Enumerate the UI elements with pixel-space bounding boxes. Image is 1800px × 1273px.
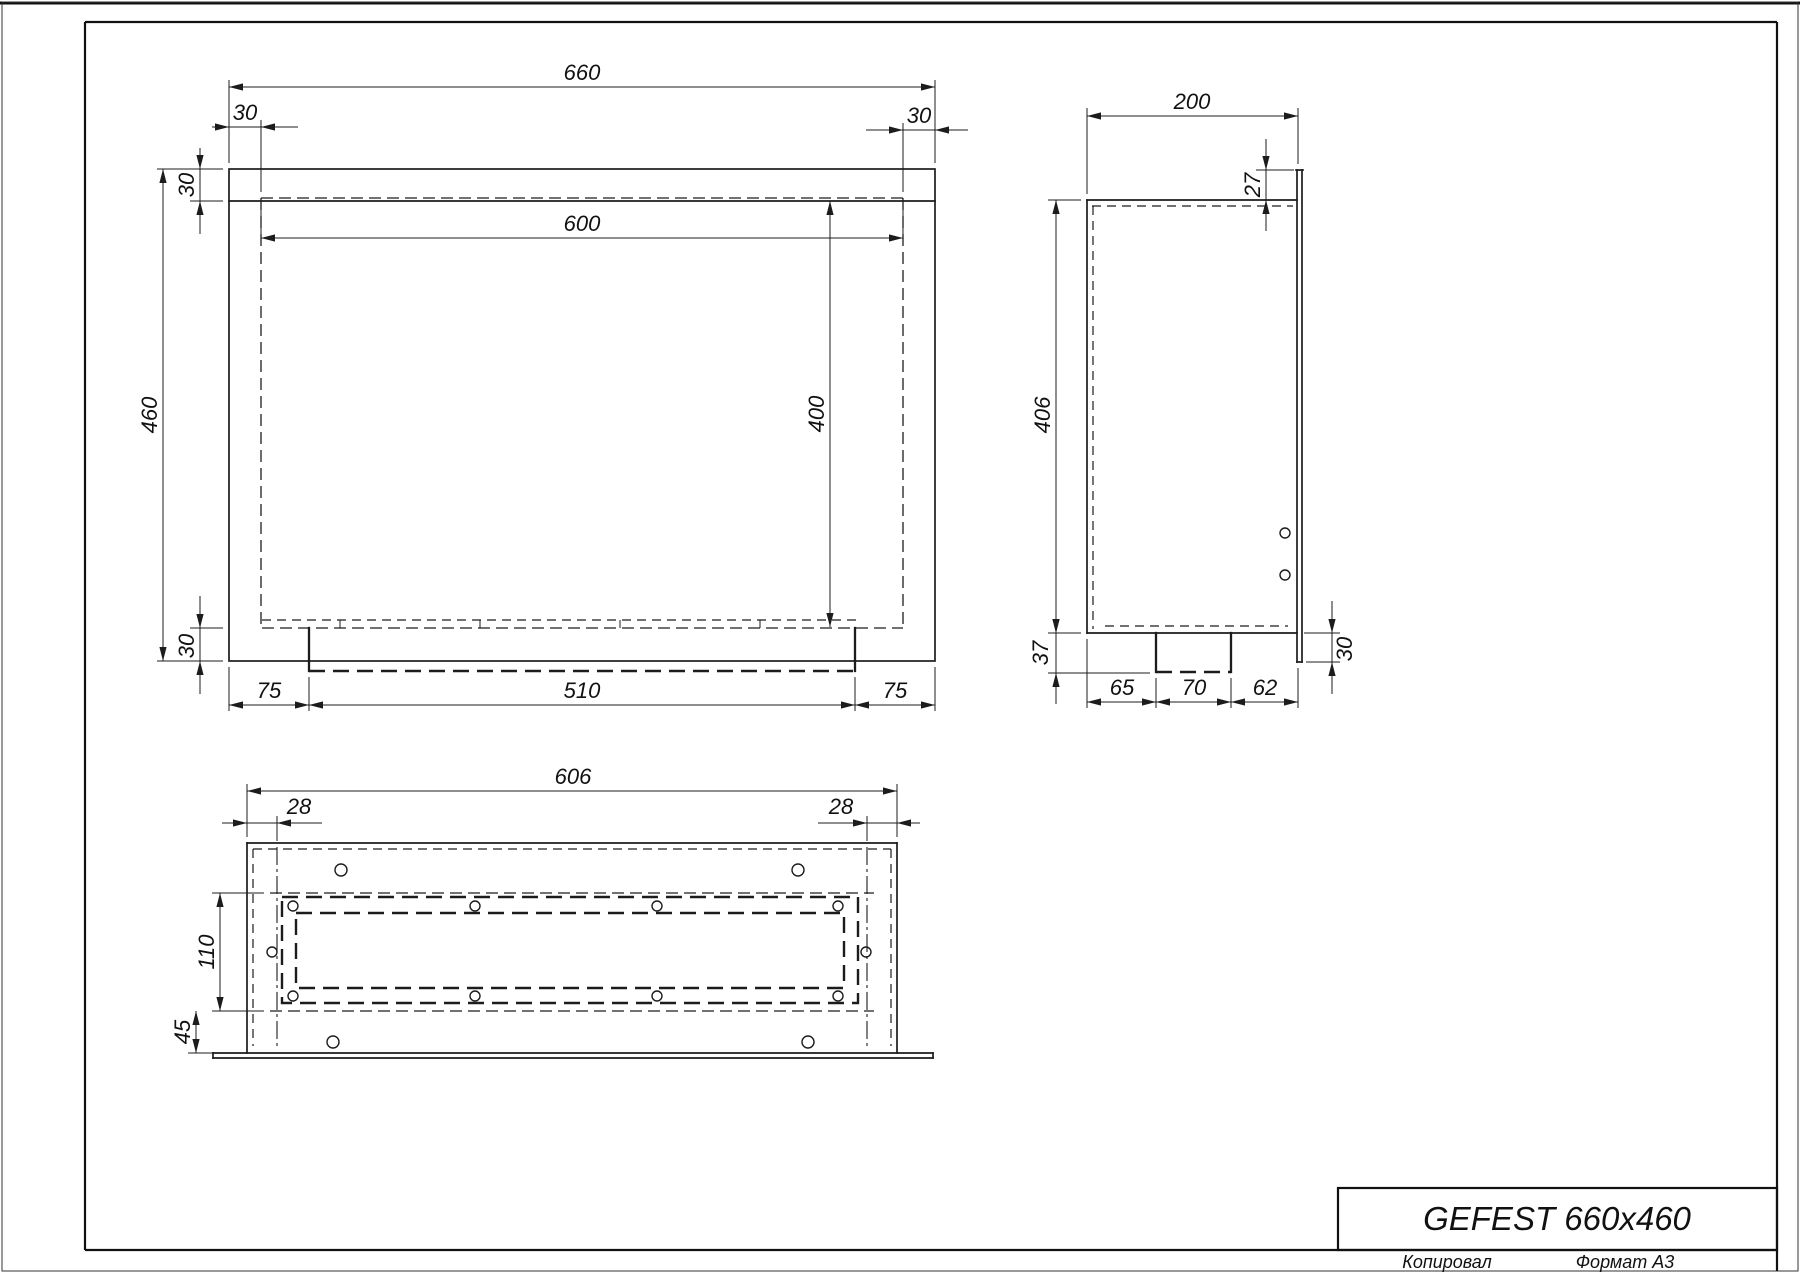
- dim-tray-row: 75 510 75: [229, 667, 935, 711]
- dim-label-600: 600: [564, 211, 601, 236]
- dim-label-30-left-top: 30: [174, 172, 199, 197]
- dim-fold-right-28: 28: [818, 794, 920, 841]
- front-view: 660 30 30 460 30: [137, 60, 968, 711]
- dim-flange-top-30: 30: [174, 148, 223, 234]
- tray-side-hole: [861, 947, 871, 957]
- dim-label-28-left: 28: [286, 794, 312, 819]
- dim-label-606: 606: [555, 764, 592, 789]
- dim-label-400: 400: [804, 395, 829, 432]
- dim-label-110: 110: [194, 934, 219, 970]
- dim-overall-width-660: 660: [229, 60, 935, 163]
- copied-label: Копировал: [1402, 1252, 1492, 1272]
- dim-label-62: 62: [1253, 675, 1277, 700]
- side-view: 200 27 406 37: [1028, 89, 1357, 708]
- dim-label-28-right: 28: [828, 794, 854, 819]
- side-view-foot: [1156, 633, 1231, 672]
- bottom-view-burner-tray: [282, 897, 858, 1003]
- dim-flange-right-30: 30: [866, 103, 968, 192]
- dim-label-460: 460: [137, 396, 162, 433]
- dim-label-65: 65: [1110, 675, 1135, 700]
- dim-flange-left-30: 30: [212, 100, 298, 192]
- dim-label-30-side: 30: [1332, 636, 1357, 661]
- dim-label-406: 406: [1030, 396, 1055, 433]
- dim-label-200: 200: [1173, 89, 1211, 114]
- dim-label-37: 37: [1028, 640, 1053, 665]
- dim-opening-width-600: 600: [261, 204, 903, 243]
- tray-hole: [470, 901, 480, 911]
- dim-label-70: 70: [1182, 675, 1207, 700]
- dim-label-30-top-left: 30: [233, 100, 258, 125]
- bottom-view-holes: [267, 864, 871, 1048]
- drawing-title: GEFEST 660x460: [1423, 1200, 1691, 1237]
- dim-flange-lip-bottom-30: 30: [1304, 601, 1357, 694]
- dim-label-30-top-right: 30: [907, 103, 932, 128]
- flange-hole: [335, 864, 347, 876]
- dim-label-510: 510: [564, 678, 601, 703]
- side-view-outline: [1087, 200, 1297, 633]
- dim-label-660: 660: [564, 60, 601, 85]
- tray-hole: [470, 991, 480, 1001]
- flange-hole: [802, 1036, 814, 1048]
- tray-hole: [833, 901, 843, 911]
- dim-opening-height-400: 400: [804, 201, 830, 627]
- side-view-flange: [1296, 170, 1303, 662]
- drawing-canvas: 660 30 30 460 30: [0, 0, 1800, 1273]
- dim-flange-bottom-30: 30: [174, 596, 223, 694]
- tray-hole: [652, 901, 662, 911]
- flange-hole: [327, 1036, 339, 1048]
- side-mount-hole-upper: [1280, 528, 1290, 538]
- sheet-border: [0, 2, 1800, 1271]
- tray-hole: [288, 901, 298, 911]
- tray-hole: [288, 991, 298, 1001]
- tray-hole: [652, 991, 662, 1001]
- dim-label-75-right: 75: [883, 678, 908, 703]
- tray-hole: [833, 991, 843, 1001]
- dim-bottom-width-606: 606: [247, 764, 897, 837]
- flange-hole: [792, 864, 804, 876]
- dim-overall-height-460: 460: [137, 169, 223, 661]
- bottom-view-outline: [213, 843, 933, 1058]
- dim-body-height-406: 406: [1030, 200, 1081, 633]
- dim-label-30-left-bottom: 30: [174, 633, 199, 658]
- dim-front-band-45: 45: [170, 1011, 213, 1053]
- dim-flange-lip-top-27: 27: [1240, 139, 1294, 231]
- dim-label-45: 45: [170, 1019, 195, 1044]
- front-view-tray: [309, 628, 855, 671]
- bottom-view: 606 28 28 110 45: [170, 764, 933, 1058]
- dim-label-27: 27: [1240, 172, 1265, 198]
- dim-label-75-left: 75: [257, 678, 282, 703]
- drawing-sheet: 660 30 30 460 30: [0, 0, 1800, 1273]
- format-label: Формат А3: [1576, 1252, 1675, 1272]
- tray-side-hole: [267, 947, 277, 957]
- side-mount-hole-lower: [1280, 570, 1290, 580]
- front-view-outline: [229, 169, 935, 661]
- dim-fold-left-28: 28: [222, 794, 322, 841]
- title-block: GEFEST 660x460 Копировал Формат А3: [1338, 1188, 1777, 1272]
